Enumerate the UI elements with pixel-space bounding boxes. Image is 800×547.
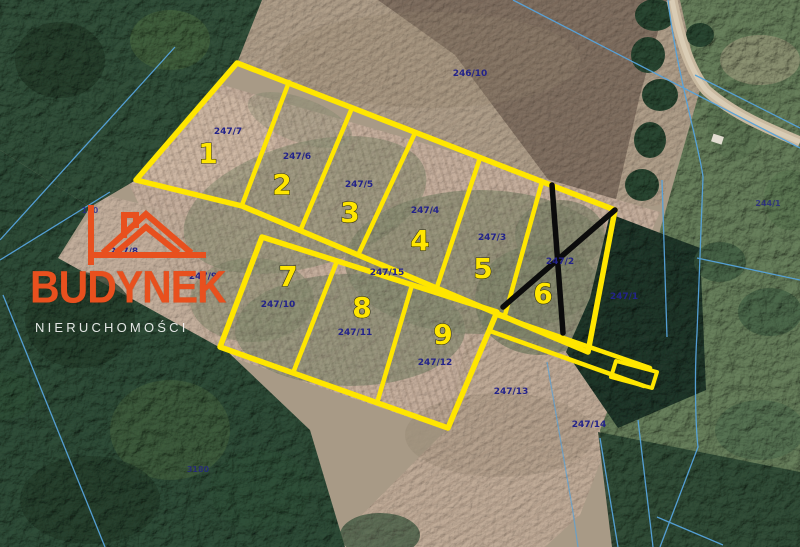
parcel-label: 247/14 [572, 420, 607, 430]
parcel-label: 247/5 [345, 180, 373, 190]
map-canvas: 246/10 247/7 247/6 247/5 247/4 247/3 247… [0, 0, 800, 547]
parcel-label: 247/13 [494, 387, 529, 397]
parcel-label: 246/10 [453, 69, 488, 79]
parcel-label: 247/1 [610, 292, 638, 302]
parcel-label: 247/15 [370, 268, 405, 278]
plot-number: 9 [433, 318, 452, 351]
parcel-label: 3180 [187, 465, 210, 474]
parcel-label: 247/7 [214, 127, 242, 137]
parcel-label: 247/2 [546, 257, 574, 267]
parcel-label: 247/3 [478, 233, 506, 243]
plot-number: 8 [352, 291, 371, 324]
parcel-label: 247/4 [411, 206, 439, 216]
parcel-label: 247/6 [283, 152, 311, 162]
plot-number: 7 [278, 260, 297, 293]
plot-number: 5 [473, 252, 492, 285]
parcel-label: 247/11 [338, 328, 373, 338]
plot-number: 6 [533, 277, 552, 310]
plot-number: 2 [272, 168, 291, 201]
aerial-map: 246/10 247/7 247/6 247/5 247/4 247/3 247… [0, 0, 800, 547]
parcel-label: 247/12 [418, 358, 453, 368]
parcel-label: 247/10 [261, 300, 296, 310]
plot-number: 1 [198, 137, 217, 170]
parcel-label: 247/8 [110, 247, 138, 257]
parcel-label: 247/9 [189, 272, 217, 282]
plot-number: 4 [410, 224, 429, 257]
parcel-label: 110 [82, 206, 99, 215]
parcel-label: 244/1 [755, 199, 781, 208]
plot-number: 3 [340, 196, 359, 229]
